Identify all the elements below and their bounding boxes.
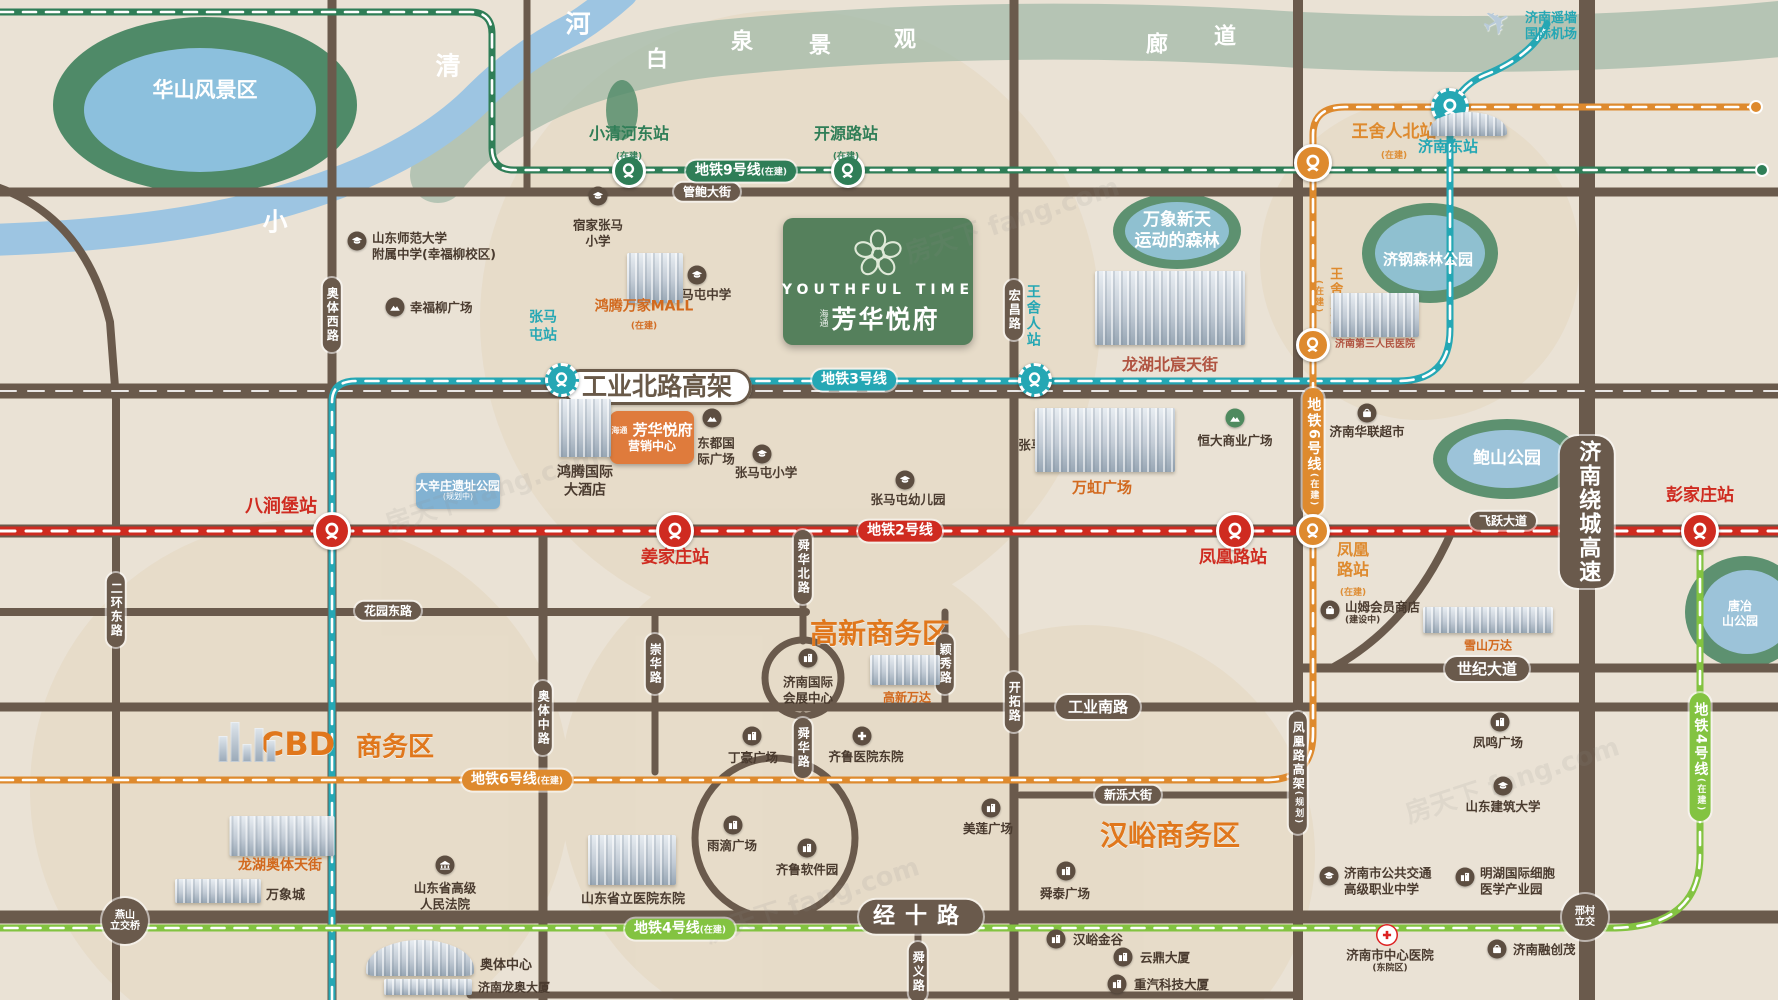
station: [1294, 144, 1332, 182]
building-image: [230, 816, 335, 856]
metro-line-label: 地铁4号线(在建): [625, 919, 735, 940]
building-caption: 鸿腾国际大酒店: [557, 465, 613, 500]
building-image: [1423, 607, 1553, 633]
station-label: 姜家庄站: [641, 547, 709, 568]
watermark: 房天下 fang.com: [900, 166, 1124, 270]
river-corridor-char: 白: [646, 46, 668, 74]
building-caption: 龙湖北宸天街: [1122, 355, 1218, 375]
landmark-icon-plaza: [982, 799, 1001, 818]
park-label: 济钢森林公园: [1383, 251, 1473, 270]
river-corridor-char: 小: [262, 206, 287, 237]
road-label-pill: 管鲍大街: [674, 183, 740, 201]
landmark-label: 凤鸣广场: [1473, 735, 1523, 751]
station: [313, 512, 351, 550]
road-label-pill: 舜华北路: [794, 530, 812, 604]
road-label-big: 经十路: [859, 900, 983, 934]
landmark-icon-plaza: [1047, 930, 1066, 949]
landmark-icon-school: [688, 266, 707, 285]
building-image: [1331, 293, 1419, 337]
road-label-pill: 舜华路: [794, 718, 812, 778]
park-label: 华山风景区: [153, 77, 258, 103]
landmark-icon-mtn: [703, 409, 722, 428]
park-label: 万象新天 运动的森林: [1135, 210, 1220, 253]
airport-label: 济南遥墙国际机场: [1525, 11, 1577, 44]
river-corridor-char: 道: [1214, 23, 1236, 51]
landmark-label: 美莲广场: [963, 821, 1013, 837]
landmark-icon-school: [1494, 777, 1513, 796]
road-label-mid: 工业南路: [1056, 695, 1140, 719]
landmark-icon-bag: [1321, 601, 1340, 620]
station-label: 凤凰路站(在建): [1337, 540, 1369, 600]
building-caption: 济南东站: [1418, 138, 1478, 157]
station: [1296, 514, 1330, 548]
station-label: 八涧堡站: [245, 496, 317, 519]
landmark-label: 山东建筑大学: [1465, 799, 1540, 815]
location-map: YOUTHFUL TIME 海通 芳华悦府 海通 芳华悦府 营销中心 大辛庄遗址…: [0, 0, 1778, 1000]
landmark-label: 云鼎大厦: [1140, 950, 1190, 966]
landmark-icon-plaza: [724, 816, 743, 835]
road-label-pill: 开拓路: [1005, 672, 1023, 732]
building-caption: 济南龙奥大厦: [478, 981, 550, 996]
zone-label: 高新商务区: [810, 612, 950, 652]
river-corridor-char: 河: [565, 8, 590, 39]
building-caption: 济南第三人民医院: [1335, 339, 1415, 352]
zone-label: 商务区: [356, 727, 434, 764]
landmark-icon-plaza: [798, 839, 817, 858]
landmark-icon-school: [1320, 867, 1339, 886]
road-label-circle: 邢村 立交: [1562, 894, 1608, 940]
metro-line-label: 地铁9号线(在建): [686, 161, 796, 182]
landmark-label: 恒大商业广场: [1197, 433, 1272, 449]
station-label: 凤凰路站: [1199, 547, 1267, 568]
landmark-label: 重汽科技大厦: [1134, 977, 1209, 993]
landmark-icon-plaza: [1456, 868, 1475, 887]
road-label-pill: 崇华路: [646, 634, 664, 694]
airplane-icon: ✈: [1475, 0, 1519, 47]
landmark-icon-school: [753, 445, 772, 464]
station: [1018, 363, 1052, 397]
building-caption: 鸿腾万家MALL(在建): [595, 299, 694, 334]
road-label-pill: 宏昌路: [1005, 280, 1023, 340]
building-image: [559, 399, 611, 457]
building-image: [384, 979, 472, 995]
building-image: [1095, 271, 1245, 345]
building-caption: 高新万达: [883, 691, 931, 706]
road-label-big: 济南绕城高速: [1560, 436, 1614, 588]
road-label-pill: 花园东路: [355, 602, 421, 620]
building-caption: 奥体中心: [480, 958, 532, 974]
landmark-icon-mtn: [386, 298, 405, 317]
building-image: [627, 253, 683, 303]
station-label: 彭家庄站: [1666, 485, 1734, 506]
landmark-label: 丁豪广场: [728, 750, 778, 766]
road-label-pill: 舜义路: [909, 942, 927, 1000]
park-label: 唐冶 山公园: [1722, 599, 1758, 629]
metro-line-label: 地铁2号线: [858, 521, 942, 542]
metro-line-label: 地铁4号线(在建): [1690, 693, 1711, 821]
landmark-icon-mtnG: [1226, 409, 1245, 428]
road-label-pill: 新泺大街: [1095, 786, 1161, 804]
landmark-icon-plaza: [1114, 948, 1133, 967]
landmark-label: 张马屯幼儿园: [870, 492, 945, 508]
station: [545, 363, 579, 397]
landmark-label: 济南融创茂: [1513, 942, 1576, 958]
building-caption: 雪山万达: [1464, 639, 1512, 654]
landmark-label: 齐鲁软件园: [776, 862, 839, 878]
river-corridor-char: 景: [809, 32, 831, 60]
station: [1296, 328, 1330, 362]
landmark-icon-plaza: [1491, 713, 1510, 732]
building-image: [588, 835, 676, 885]
landmark-icon-school: [589, 187, 608, 206]
landmark-icon-bank: [436, 856, 455, 875]
landmark-label: 山东师范大学附属中学(幸福柳校区): [372, 230, 496, 261]
zone-label: 汉峪商务区: [1100, 814, 1240, 854]
landmark-label: 济南市公共交通高级职业中学: [1344, 865, 1432, 896]
station-label: 小清河东站(在建): [589, 124, 669, 164]
building-image: [870, 655, 940, 685]
station-label: 开源路站(在建): [814, 124, 878, 164]
river-corridor-char: 观: [894, 26, 916, 54]
metro-line-label: 地铁6号线(在建): [1303, 388, 1324, 516]
landmark-icon-plaza: [1057, 862, 1076, 881]
road-label-pill: 奥体西路: [323, 278, 341, 352]
building-caption: 山东省立医院东院: [581, 892, 685, 908]
road-label-pill: 凤凰路高架(规划): [1289, 712, 1307, 834]
road-label-pill: 奥体中路: [534, 681, 552, 755]
landmark-icon-plaza: [743, 727, 762, 746]
landmark-label: 汉峪金谷: [1073, 932, 1123, 948]
map-overlay: 房天下 fang.com房天下 fang.com房天下 fang.com房天下 …: [0, 0, 1778, 1000]
landmark-icon-bag: [1488, 940, 1507, 959]
metro-line-label: 地铁6号线(在建): [462, 770, 572, 791]
landmark-label: 齐鲁医院东院: [828, 749, 903, 765]
road-label-mid: 世纪大道: [1445, 657, 1529, 681]
landmark-icon-bag: [1358, 404, 1377, 423]
river-corridor-char: 泉: [731, 28, 753, 56]
landmark-label: 张马屯小学: [735, 465, 798, 481]
cbd-towers-icon: [219, 722, 276, 762]
landmark-icon-plaza: [1108, 975, 1127, 994]
building-image: [1429, 112, 1507, 136]
landmark-label: 明湖国际细胞医学产业园: [1480, 865, 1555, 896]
park-label: 鲍山公园: [1473, 448, 1541, 469]
station: [1216, 512, 1254, 550]
landmark-label: 宿家张马小学: [573, 217, 623, 248]
landmark-label: 东都国际广场: [697, 435, 735, 466]
landmark-icon-school: [896, 471, 915, 490]
landmark-label: 山姆会员商店(建设中): [1345, 600, 1420, 627]
station: [1681, 512, 1719, 550]
landmark-label: 济南国际会展中心: [783, 674, 833, 705]
landmark-icon-cross: [853, 727, 872, 746]
river-corridor-char: 廊: [1146, 31, 1168, 59]
road-label-pill: 二环东路: [107, 573, 125, 647]
landmark-icon-expo: [799, 649, 818, 668]
station-label: 张马屯站: [529, 310, 557, 345]
building-caption: 龙湖奥体天街: [238, 857, 322, 875]
building-image: [175, 879, 261, 903]
landmark-label: 舜泰广场: [1040, 886, 1090, 902]
road-label-pill: 飞跃大道: [1470, 512, 1536, 530]
metro-line-label: 地铁3号线: [812, 370, 896, 391]
building-caption: 万象城: [266, 888, 305, 904]
station: [656, 512, 694, 550]
landmark-label: 雨滴广场: [707, 838, 757, 854]
building-image: [1035, 408, 1175, 472]
landmark-label: 山东省高级人民法院: [414, 880, 477, 911]
landmark-label: 幸福柳广场: [410, 300, 473, 316]
landmark-icon-school: [348, 232, 367, 251]
building-image: [366, 940, 474, 976]
landmark-label: 济南华联超市: [1329, 424, 1404, 440]
road-label-circle: 燕山 立交桥: [102, 898, 148, 944]
station-label: 王舍人站: [1023, 284, 1041, 348]
landmark-label: 济南市中心医院(东院区): [1346, 948, 1434, 975]
river-corridor-char: 清: [435, 50, 460, 81]
building-caption: 万虹广场: [1072, 479, 1132, 498]
landmark-icon-crossR: [1378, 926, 1397, 945]
